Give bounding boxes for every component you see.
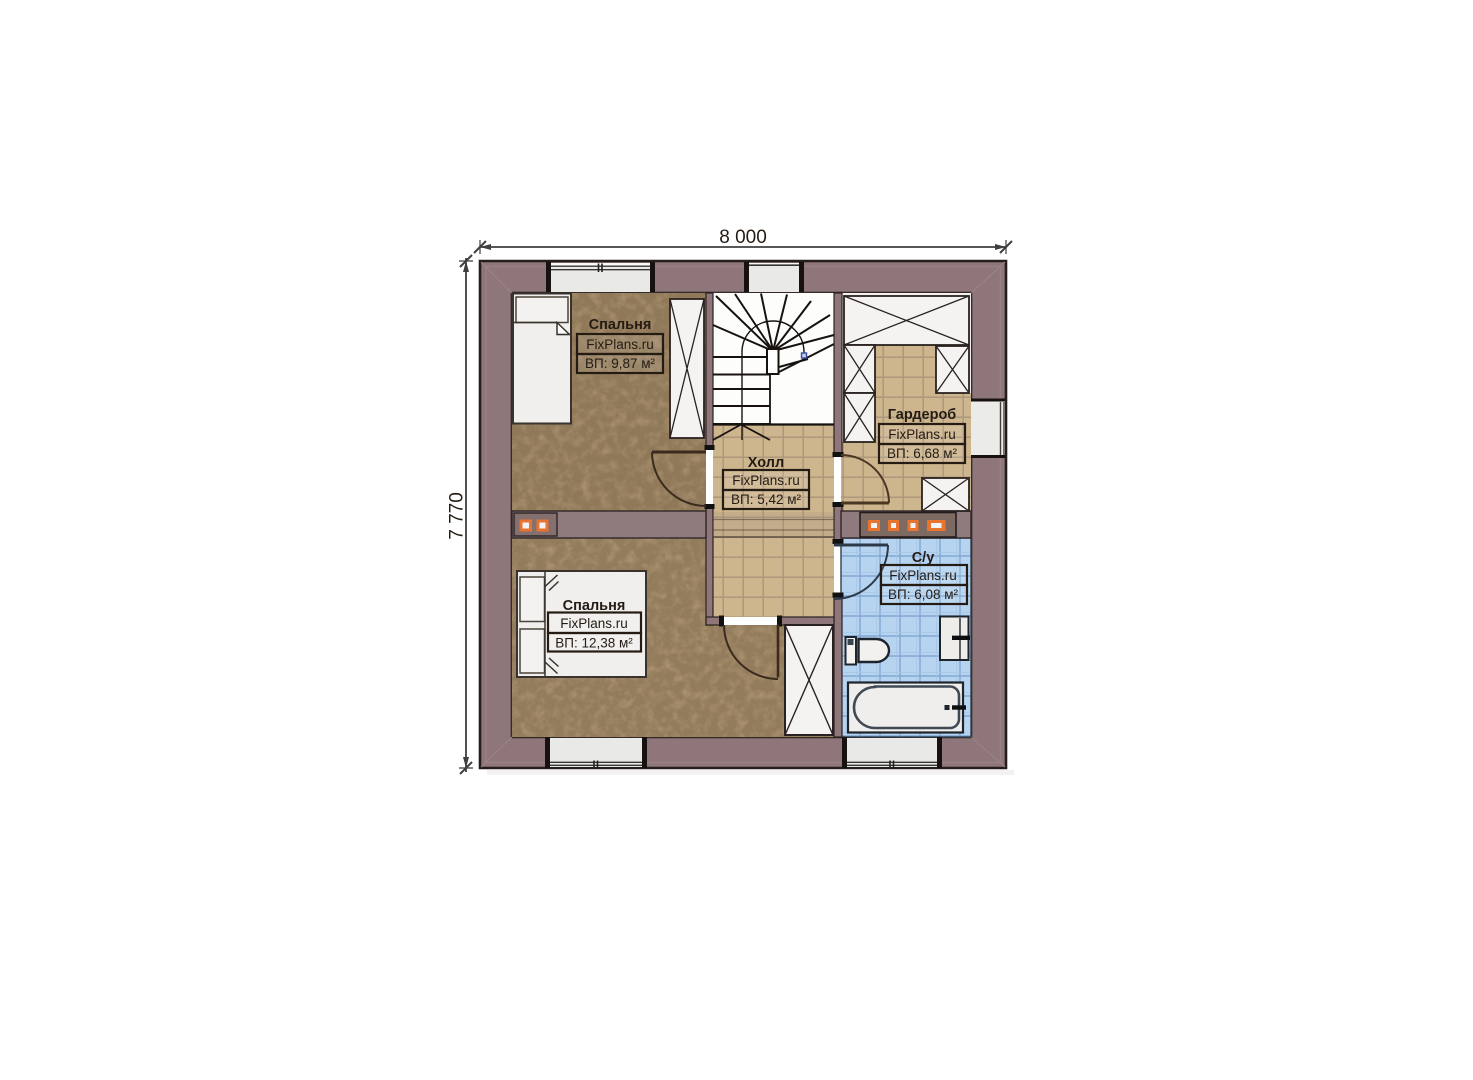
svg-text:Гардероб: Гардероб bbox=[888, 407, 957, 423]
svg-text:FixPlans.ru: FixPlans.ru bbox=[560, 616, 628, 631]
svg-text:ВП: 5,42 м²: ВП: 5,42 м² bbox=[731, 492, 802, 507]
svg-text:ВП: 12,38 м²: ВП: 12,38 м² bbox=[555, 636, 633, 651]
svg-text:С/у: С/у bbox=[912, 550, 935, 566]
svg-text:FixPlans.ru: FixPlans.ru bbox=[732, 473, 800, 488]
svg-text:ВП: 6,08 м²: ВП: 6,08 м² bbox=[888, 587, 959, 602]
svg-text:ВП: 6,68 м²: ВП: 6,68 м² bbox=[887, 446, 958, 461]
svg-text:Холл: Холл bbox=[748, 455, 784, 471]
svg-text:FixPlans.ru: FixPlans.ru bbox=[586, 337, 654, 352]
svg-text:FixPlans.ru: FixPlans.ru bbox=[889, 568, 957, 583]
svg-text:Спальня: Спальня bbox=[589, 317, 652, 333]
svg-text:ВП: 9,87 м²: ВП: 9,87 м² bbox=[585, 356, 656, 371]
svg-text:7 770: 7 770 bbox=[447, 492, 468, 540]
svg-text:8 000: 8 000 bbox=[719, 227, 767, 248]
svg-text:FixPlans.ru: FixPlans.ru bbox=[888, 427, 956, 442]
